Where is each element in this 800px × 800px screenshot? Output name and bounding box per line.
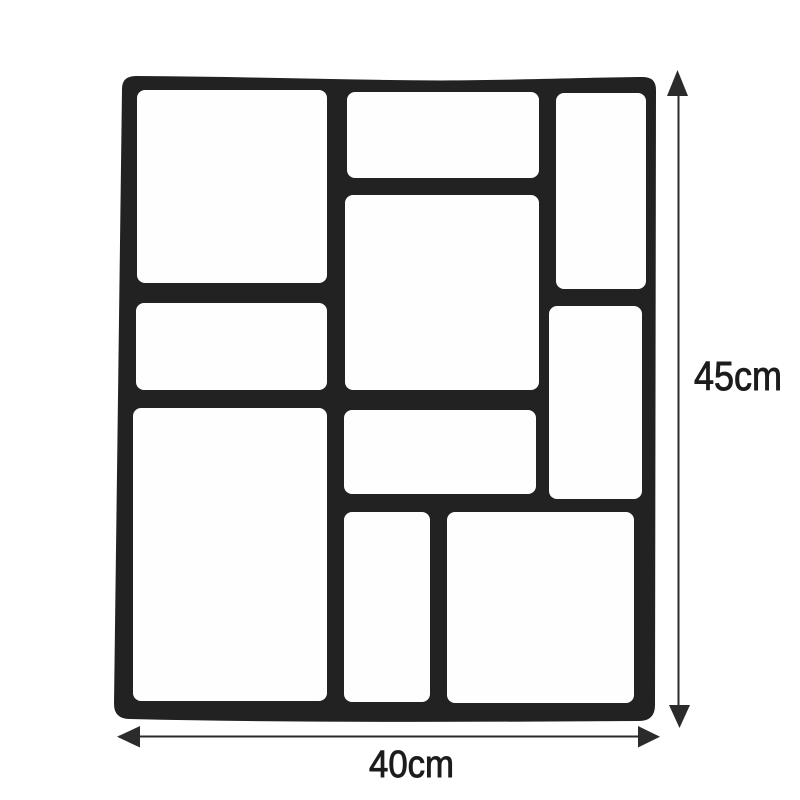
svg-text:45cm: 45cm xyxy=(694,353,782,399)
svg-text:40cm: 40cm xyxy=(369,744,454,786)
